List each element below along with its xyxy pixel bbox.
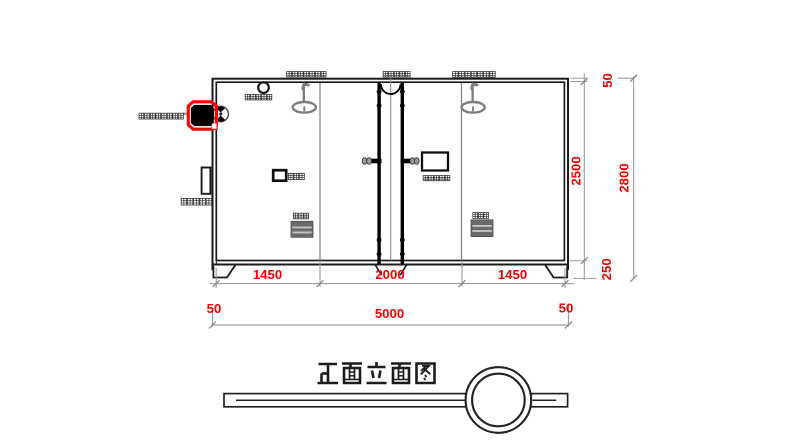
svg-text:50: 50	[207, 301, 222, 316]
svg-text:2800: 2800	[616, 163, 631, 192]
svg-text:250: 250	[599, 258, 614, 280]
svg-text:1450: 1450	[253, 267, 282, 282]
svg-text:1450: 1450	[498, 267, 527, 282]
svg-text:50: 50	[600, 73, 615, 88]
svg-text:5000: 5000	[375, 306, 404, 321]
svg-text:2500: 2500	[568, 156, 583, 185]
svg-text:2000: 2000	[375, 267, 404, 282]
svg-text:50: 50	[559, 300, 574, 315]
